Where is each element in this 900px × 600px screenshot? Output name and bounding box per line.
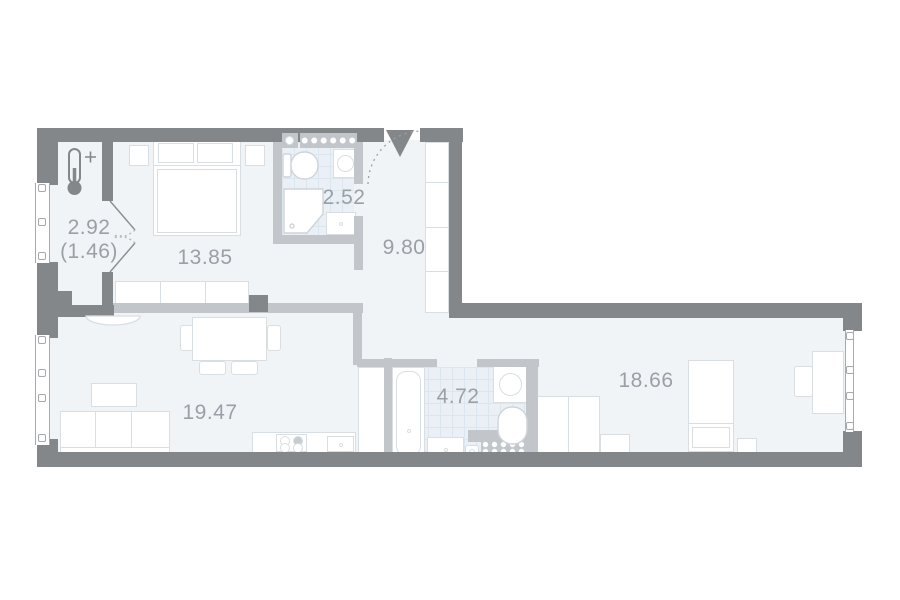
room-label-bedroom: 13.85	[150, 246, 260, 270]
toilet	[283, 152, 318, 179]
room-label-balcony: 2.92 (1.46)	[44, 216, 134, 264]
balcony-area-additional: (1.46)	[60, 240, 118, 263]
room-label-hallway: 9.80	[360, 236, 448, 260]
room-label-bathroom-top: 2.52	[300, 186, 388, 210]
room-label-living-kitchen: 19.47	[155, 401, 265, 425]
floor-plan: 2.92 (1.46) 13.85 2.52 9.80 19.47 4.72 1…	[0, 0, 900, 600]
thermometer-plus-icon	[68, 149, 97, 195]
balcony-area: 2.92	[68, 216, 111, 239]
entrance-triangle-icon	[386, 130, 414, 157]
room-label-bathroom-bottom: 4.72	[413, 385, 503, 409]
toilet	[498, 407, 527, 444]
room-label-bedroom-right: 18.66	[591, 369, 701, 393]
entrance-door-swing-arc	[368, 131, 421, 184]
plan-symbols-layer	[0, 0, 900, 600]
console-table	[86, 316, 140, 325]
